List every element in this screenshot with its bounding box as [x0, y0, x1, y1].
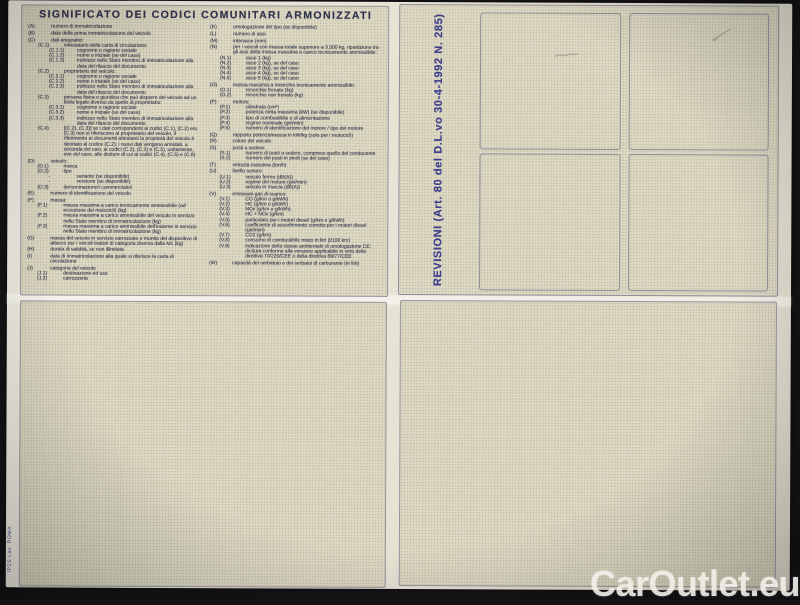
legend-item-text: numero di identificazione del veicolo [50, 192, 200, 198]
legend-item-code: (H) [27, 248, 50, 253]
revision-stamp-box [480, 12, 621, 150]
printer-imprint: IPZS Lav. ROMA [6, 514, 14, 584]
watermark: CarOutlet.eu [590, 563, 800, 605]
legend-item-code: (V.6) [219, 223, 245, 228]
legend-item-text: [(C.2), (C.3)] se i dati corrispondenti … [64, 127, 201, 159]
legend-left-column: (A) numero di immatricolazione (B) data … [27, 23, 201, 282]
legend-title: SIGNIFICATO DEI CODICI COMUNITARI ARMONI… [28, 7, 383, 25]
legend-item-code: (U.3) [219, 185, 245, 190]
revision-stamp-box [628, 13, 769, 151]
legend-item-text: rimorchio non frenato (kg) [246, 94, 383, 100]
legend-item-code: (C.1.3) [49, 59, 77, 64]
legend-item-code: (F.1) [37, 203, 63, 208]
legend-item: (J.2) carrozzeria [37, 277, 200, 283]
legend-item-text: data di immatricolazione alla quale si r… [50, 255, 200, 266]
legend-item-text: data della prima immatricolazione del ve… [51, 31, 201, 37]
legend-item: (F.3) massa massima a carico ammissibile… [37, 224, 200, 235]
legend-item-code: (C.2.3) [49, 85, 77, 90]
legend-item: (L) numero di assi [210, 32, 383, 38]
legend-right-column: (K) omologazione del tipo (se disponibil… [209, 24, 383, 283]
legend-item: (P.5) numero di identificazione del moto… [220, 126, 383, 132]
revision-stamp-box [628, 154, 769, 292]
legend-item: (W) capacità del serbatoio o dei serbato… [209, 261, 382, 267]
legend-item-code: (C.3) [38, 95, 64, 100]
legend-item: (I) data di immatricolazione alla quale … [27, 254, 200, 265]
legend-item-code: (R) [210, 139, 233, 144]
legend-item-code: (V.9) [219, 244, 245, 249]
revision-stamp-box [479, 153, 620, 291]
legend-item: (C.4) [(C.2), (C.3)] se i dati corrispon… [38, 126, 201, 158]
revisioni-label: REVISIONI (Art. 80 del D.L.vo 30-4-1992 … [426, 5, 451, 294]
legend-item-code: (A) [28, 25, 51, 30]
legend-item: (V.9) indicazione della classe ambiental… [219, 244, 382, 260]
legend-item-text: numero di assi [233, 32, 383, 38]
blank-panel-bottom-left [19, 300, 387, 588]
legend-item-text: veicolo in marcia (dB(A)) [245, 185, 382, 191]
document-sheet: SIGNIFICATO DEI CODICI COMUNITARI ARMONI… [6, 0, 793, 590]
legend-item-code: (N.5) [220, 77, 246, 82]
legend-columns: (A) numero di immatricolazione (B) data … [27, 23, 383, 283]
revisioni-stamp-grid [479, 12, 769, 291]
legend-item-code: (C.3.3) [49, 116, 77, 121]
legend-item: (U.3) veicolo in marcia (dB(A)) [219, 185, 382, 191]
legend-panel: SIGNIFICATO DEI CODICI COMUNITARI ARMONI… [20, 4, 389, 297]
legend-item-code: (G) [27, 236, 50, 241]
pen-mark-icon [710, 28, 732, 44]
legend-item-code: (F.2) [37, 214, 63, 219]
legend-item-code: (P.5) [220, 126, 246, 131]
legend-item-code: (F.3) [37, 224, 63, 229]
legend-item-code: (B) [28, 31, 51, 36]
legend-item-text: numero di identificazione del motore / t… [246, 126, 383, 132]
legend-item-code: (O.2) [220, 94, 246, 99]
photo-of-vehicle-document: { "legend": { "title": "SIGNIFICATO DEI … [0, 0, 800, 600]
legend-item-code: (C.4) [38, 126, 64, 131]
pen-mark-icon [553, 49, 579, 61]
legend-item-code: (I) [27, 254, 50, 259]
revisioni-panel: REVISIONI (Art. 80 del D.L.vo 30-4-1992 … [398, 4, 779, 297]
legend-item-code: (N) [210, 45, 233, 50]
legend-item-text: massa del veicolo in servizio carrozzato… [50, 236, 200, 247]
legend-item: (B) data della prima immatricolazione de… [28, 31, 201, 37]
legend-item-text: massa massima a carico ammissibile dell'… [63, 224, 200, 235]
legend-item-code: (J.2) [37, 277, 63, 282]
legend-item-text: capacità del serbatoio o dei serbatoi di… [232, 261, 382, 267]
blank-panel-bottom-right [399, 300, 777, 588]
legend-item-text: indicazione della classe ambientale di o… [245, 244, 382, 260]
legend-item-code: (S.2) [220, 156, 246, 161]
legend-item-code: (W) [209, 261, 232, 266]
legend-item: (V.6) coefficiente di assorbimento corre… [219, 223, 382, 234]
legend-item-code: (L) [210, 32, 233, 37]
legend-item-code: (K) [210, 26, 233, 31]
legend-item-text: carrozzeria [63, 277, 200, 283]
legend-item-code: (E) [27, 192, 50, 197]
legend-item: (N) per i veicoli con massa totale super… [210, 45, 383, 56]
